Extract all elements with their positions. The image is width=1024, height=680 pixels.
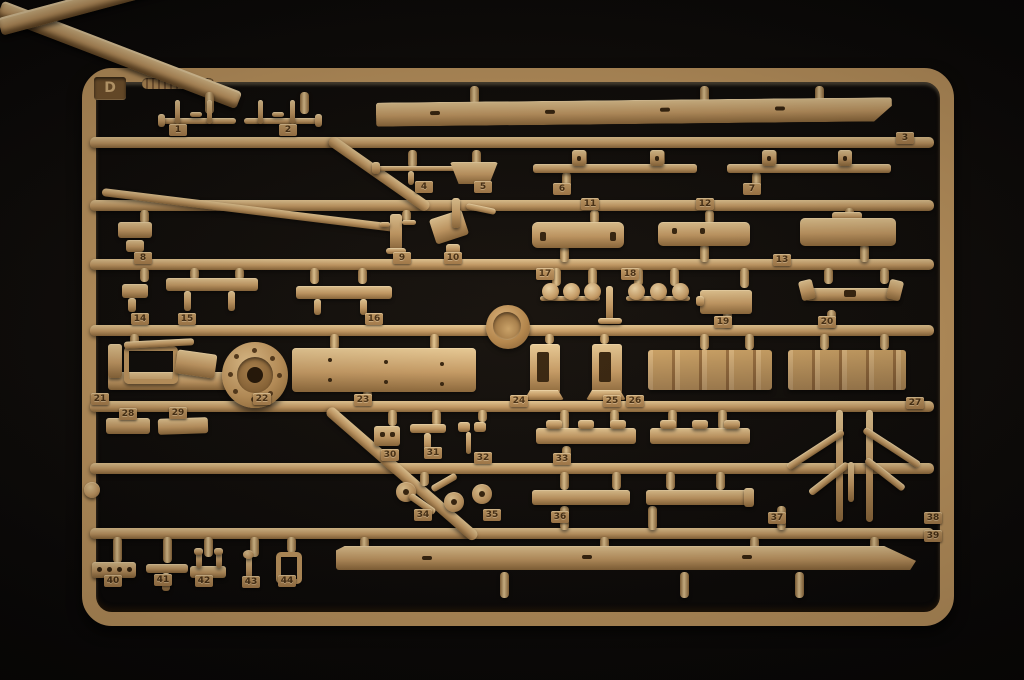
sprue-gate: [310, 268, 319, 284]
sprue-part: [194, 548, 203, 555]
part-number-tag-44: 44: [278, 575, 296, 587]
sprue-part: [646, 490, 752, 505]
sprue-gate: [113, 537, 122, 563]
sprue-gate: [716, 472, 725, 490]
part-number-tag-16: 16: [365, 313, 383, 325]
sprue-part: [408, 171, 414, 185]
sprue-part: [146, 564, 188, 573]
sprue-part: [124, 346, 178, 384]
sprue-gate: [140, 268, 149, 282]
part-number-tag-26: 26: [626, 395, 644, 407]
sprue-part: [440, 382, 444, 386]
part-number-tag-9: 9: [393, 252, 411, 264]
sprue-part: [584, 283, 601, 300]
sprue-part: [610, 232, 616, 241]
sprue-part: [97, 567, 102, 572]
sprue-part: [258, 100, 263, 124]
sprue-part: [122, 284, 148, 298]
sprue-part: [767, 156, 771, 161]
sprue-part: [430, 111, 440, 115]
sprue-part: [158, 417, 209, 435]
sprue-part: [479, 491, 485, 497]
part-number-tag-40: 40: [104, 575, 122, 587]
part-number-tag-1: 1: [169, 124, 187, 136]
sprue-gate: [880, 334, 889, 350]
sprue-part: [374, 426, 400, 446]
part-number-tag-25: 25: [603, 395, 621, 407]
sprue-runner: [90, 463, 934, 474]
sprue-gate: [204, 537, 213, 557]
sprue-part: [692, 420, 708, 429]
sprue-gate: [860, 244, 869, 262]
sprue-part: [166, 278, 258, 291]
sprue-part: [403, 489, 409, 495]
sprue-runner: [90, 137, 934, 148]
sprue-part: [315, 114, 322, 127]
sprue-part: [451, 499, 457, 505]
sprue-part: [128, 298, 136, 312]
sprue-gate: [560, 472, 569, 490]
sprue-gate: [163, 537, 172, 563]
part-number-tag-34: 34: [414, 509, 432, 521]
sprue-part: [848, 462, 854, 502]
sprue-gate: [545, 334, 554, 344]
sprue-gate: [500, 572, 509, 598]
sprue-letter: D: [104, 80, 116, 96]
part-number-tag-12: 12: [696, 198, 714, 210]
sprue-part: [660, 108, 670, 112]
sprue-part: [610, 420, 626, 429]
sprue-part: [542, 283, 559, 300]
sprue-part: [458, 422, 470, 432]
sprue-part: [108, 344, 122, 378]
sprue-part: [700, 228, 705, 234]
part-number-tag-4: 4: [415, 181, 433, 193]
part-mudguard-b: [788, 350, 906, 390]
sprue-runner: [90, 528, 934, 539]
sprue-part: [650, 428, 750, 444]
sprue-part: [628, 283, 645, 300]
sprue-part: [537, 352, 549, 382]
sprue-part: [532, 490, 630, 505]
part-number-tag-30: 30: [381, 449, 399, 461]
sprue-gate: [358, 268, 367, 284]
sprue-part: [563, 283, 580, 300]
sprue-part: [582, 555, 592, 559]
part-number-tag-28: 28: [119, 408, 137, 420]
part-number-tag-3: 3: [896, 132, 914, 144]
sprue-part: [742, 555, 752, 559]
sprue-photo: D: [0, 0, 1024, 680]
part-number-tag-14: 14: [131, 313, 149, 325]
sprue-gate: [795, 572, 804, 598]
part-number-tag-38: 38: [924, 512, 942, 524]
sprue-part: [672, 228, 677, 234]
part-number-tag-17: 17: [536, 268, 554, 280]
sprue-part: [126, 240, 144, 252]
sprue-part: [372, 162, 380, 174]
sprue-gate: [560, 246, 569, 262]
sprue-part: [532, 222, 624, 248]
part-number-tag-22: 22: [253, 393, 271, 405]
part-number-tag-29: 29: [169, 407, 187, 419]
sprue-part: [696, 296, 704, 306]
sprue-part: [384, 380, 388, 384]
sprue-part: [184, 291, 191, 311]
sprue-gate: [680, 572, 689, 598]
sprue-part: [598, 318, 622, 324]
sprue-part: [474, 422, 486, 432]
part-number-tag-11: 11: [581, 198, 599, 210]
part-number-tag-41: 41: [154, 574, 172, 586]
part-number-tag-35: 35: [483, 509, 501, 521]
sprue-gate: [470, 86, 479, 104]
sprue-part: [843, 156, 847, 161]
brand-medallion: [486, 305, 530, 349]
sprue-gate: [745, 334, 754, 350]
sprue-part: [175, 100, 180, 124]
part-number-tag-6: 6: [553, 183, 571, 195]
sprue-part: [546, 420, 562, 429]
part-number-tag-15: 15: [178, 313, 196, 325]
sprue-part: [272, 112, 284, 117]
sprue-part: [190, 112, 202, 117]
sprue-part: [724, 420, 740, 429]
part-number-tag-21: 21: [91, 393, 109, 405]
sprue-part: [655, 156, 659, 161]
sprue-part: [466, 432, 471, 454]
sprue-part: [127, 567, 132, 572]
sprue-gate: [600, 334, 609, 344]
sprue-part: [660, 420, 676, 429]
sprue-gate: [478, 410, 487, 422]
sprue-part: [296, 286, 392, 299]
sprue-part: [290, 100, 295, 124]
sprue-part: [402, 220, 416, 225]
sprue-part: [452, 198, 460, 228]
sprue-gate: [648, 506, 657, 530]
sprue-part: [422, 556, 432, 560]
sprue-part: [540, 232, 546, 241]
sprue-part: [844, 290, 856, 297]
sprue-part: [545, 110, 555, 114]
sprue-part: [328, 358, 332, 362]
sprue-gate: [824, 268, 833, 284]
sprue-part: [533, 164, 697, 173]
sprue-part: [158, 114, 165, 127]
sprue-gate: [666, 472, 675, 490]
sprue-part: [700, 290, 752, 314]
sprue-gate: [287, 537, 296, 553]
part-chassis-plank: [292, 348, 476, 392]
sprue-gate: [820, 334, 829, 350]
part-number-tag-27: 27: [906, 397, 924, 409]
sprue-letter-plate: D: [94, 77, 126, 100]
sprue-part: [658, 222, 750, 246]
sprue-part: [672, 283, 689, 300]
sprue-gate: [420, 472, 429, 486]
sprue-part: [410, 424, 446, 433]
part-hull-plank-bottom: [336, 546, 916, 570]
part-number-tag-32: 32: [474, 452, 492, 464]
sprue-part: [384, 360, 388, 364]
sprue-part: [599, 352, 611, 382]
sprue-runner: [90, 259, 934, 270]
sprue-part: [606, 286, 613, 322]
sprue-part: [378, 166, 462, 171]
sprue-part: [328, 378, 332, 382]
sprue-part: [744, 488, 754, 507]
sprue-part: [207, 100, 212, 124]
part-number-tag-13: 13: [773, 254, 791, 266]
sprue-gate: [740, 268, 749, 288]
sprue-part: [577, 156, 581, 161]
sprue-part: [578, 420, 594, 429]
sprue-part: [390, 432, 395, 437]
part-number-tag-33: 33: [553, 453, 571, 465]
sprue-part: [228, 291, 235, 311]
sprue-part: [84, 482, 100, 498]
part-number-tag-19: 19: [714, 316, 732, 328]
sprue-gate: [700, 334, 709, 350]
sprue-part: [214, 548, 223, 555]
sprue-part: [775, 106, 785, 110]
sprue-part: [800, 218, 896, 246]
sprue-part: [118, 222, 152, 238]
sprue-part: [650, 283, 667, 300]
part-number-tag-5: 5: [474, 181, 492, 193]
sprue-part: [117, 567, 122, 572]
part-number-tag-37: 37: [768, 512, 786, 524]
sprue-part: [536, 428, 636, 444]
part-number-tag-20: 20: [818, 316, 836, 328]
part-number-tag-8: 8: [134, 252, 152, 264]
sprue-part: [390, 214, 402, 250]
part-number-tag-23: 23: [354, 394, 372, 406]
part-number-tag-10: 10: [444, 252, 462, 264]
sprue-gate: [700, 244, 709, 262]
sprue-part: [440, 362, 444, 366]
sprue-part: [106, 418, 150, 434]
part-number-tag-39: 39: [924, 530, 942, 542]
part-number-tag-42: 42: [195, 575, 213, 587]
sprue-part: [314, 299, 321, 315]
sprue-part: [524, 390, 564, 400]
part-number-tag-7: 7: [743, 183, 761, 195]
part-number-tag-24: 24: [510, 395, 528, 407]
sprue-part: [727, 164, 891, 173]
sprue-part: [107, 567, 112, 572]
part-number-tag-36: 36: [551, 511, 569, 523]
sprue-gate: [388, 410, 397, 426]
part-number-tag-2: 2: [279, 124, 297, 136]
part-mudguard-a: [648, 350, 772, 390]
sprue-gate: [300, 92, 309, 114]
sprue-gate: [880, 268, 889, 284]
part-number-tag-31: 31: [424, 447, 442, 459]
part-number-tag-43: 43: [242, 576, 260, 588]
part-number-tag-18: 18: [621, 268, 639, 280]
sprue-part: [380, 222, 390, 227]
sprue-gate: [612, 472, 621, 490]
sprue-part: [380, 432, 385, 437]
sprue-part: [243, 550, 254, 559]
